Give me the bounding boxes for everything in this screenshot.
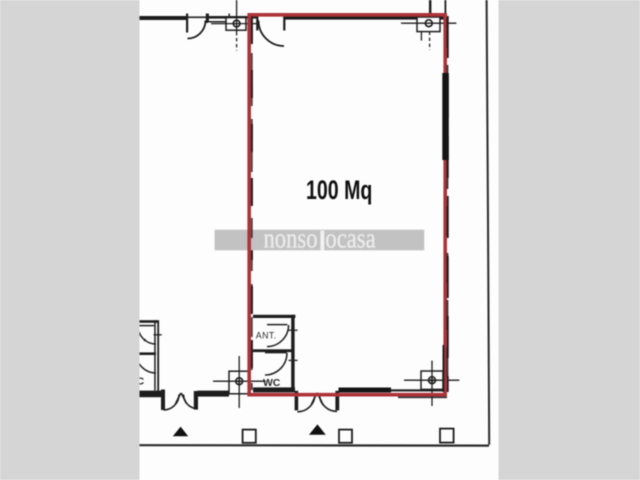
svg-text:ANT.: ANT. bbox=[256, 330, 277, 340]
svg-text:100 Mq: 100 Mq bbox=[306, 176, 372, 206]
svg-text:WC: WC bbox=[263, 378, 281, 389]
svg-text:nonso: nonso bbox=[264, 222, 318, 254]
svg-text:ocasa: ocasa bbox=[325, 222, 376, 254]
